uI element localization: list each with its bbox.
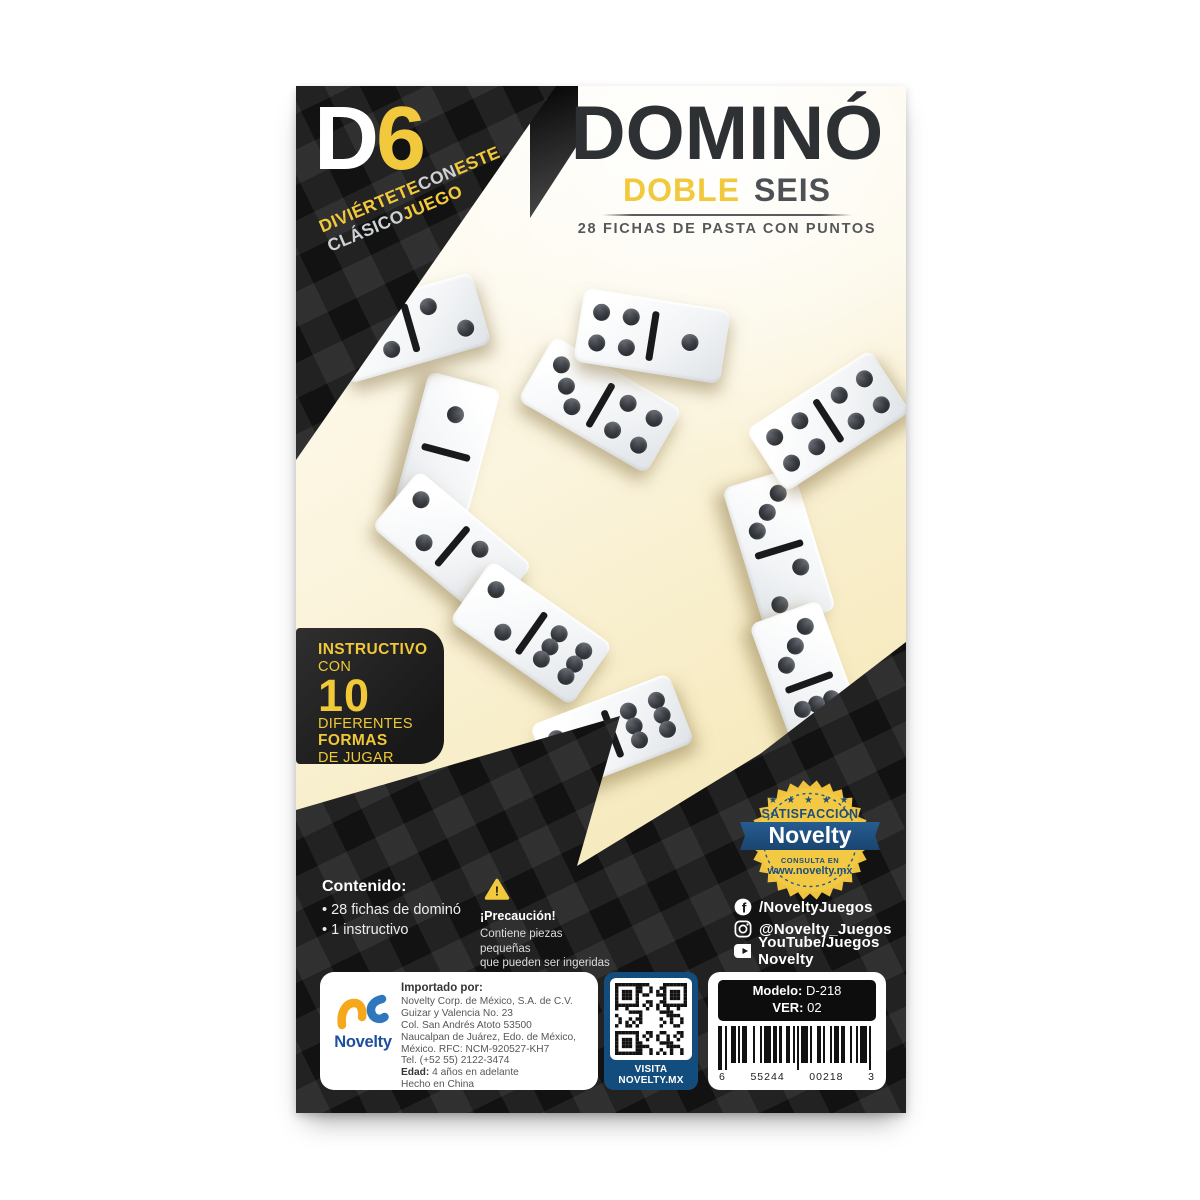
contenido-title: Contenido: <box>322 878 461 896</box>
qr-caption: VISITA NOVELTY.MX <box>610 1064 692 1086</box>
title-divider-rule <box>602 214 852 216</box>
pip <box>627 434 650 457</box>
barcode-bar <box>860 1026 867 1063</box>
pip <box>409 488 433 512</box>
pip <box>587 333 606 352</box>
pip <box>853 367 877 391</box>
qr-code-icon <box>615 983 687 1055</box>
pip <box>775 654 797 676</box>
model-header: Modelo: D-218 VER: 02 <box>718 980 876 1021</box>
product-packshot: D6 DIVIÉRTETECONESTE CLÁSICOJUEGO DOMINÓ… <box>0 0 1200 1200</box>
importer-line: Tel. (+52 55) 2122-3474 <box>401 1055 592 1067</box>
importer-title: Importado por: <box>401 982 592 995</box>
importer-line: Guizar y Valencia No. 23 <box>401 1008 592 1020</box>
instructivo-line: DIFERENTES <box>318 716 444 732</box>
barcode-digit-group: 00218 <box>809 1071 843 1083</box>
qr-code <box>610 978 692 1060</box>
barcode-digit-group: 55244 <box>750 1071 784 1083</box>
seal-brand: Novelty <box>740 822 880 849</box>
instructivo-line: INSTRUCTIVO <box>318 641 444 659</box>
tile-half <box>650 300 731 384</box>
social-handle: YouTube/Juegos Novelty <box>758 934 906 968</box>
pip <box>560 395 583 418</box>
satisfaction-seal: ★ ★ ★ ★ ★ SATISFACCIÓN Novelty CONSULTA … <box>740 770 880 910</box>
importer-origin: Hecho en China <box>401 1079 592 1091</box>
youtube-icon <box>734 943 751 959</box>
tile-half <box>573 288 654 372</box>
pip <box>446 404 467 425</box>
contenido-item: • 28 fichas de dominó <box>322 900 461 920</box>
barcode-digit-group: 6 <box>719 1071 726 1083</box>
novelty-logo: Novelty <box>330 980 396 1084</box>
age-label: Edad: <box>401 1067 429 1078</box>
barcode-digits: 6 55244 00218 3 <box>718 1070 876 1083</box>
product-subtitle: DOBLESEIS <box>547 174 906 208</box>
model-value: D-218 <box>802 983 841 998</box>
importer-line: México. RFC: NCM-920527-KH7 <box>401 1044 592 1056</box>
barcode-space <box>871 1026 875 1070</box>
svg-text:f: f <box>742 900 747 916</box>
pip <box>870 393 894 417</box>
seal-satisfaccion: SATISFACCIÓN <box>740 807 880 821</box>
novelty-wordmark: Novelty <box>330 1033 396 1052</box>
instagram-icon <box>734 920 752 938</box>
pip <box>412 531 436 555</box>
age-value: 4 años en adelante <box>429 1067 519 1078</box>
pip <box>550 353 573 376</box>
pip <box>601 419 624 442</box>
pip <box>418 296 439 317</box>
warning-icon: ! <box>484 878 510 901</box>
importer-age-line: Edad: 4 años en adelante <box>401 1067 592 1079</box>
product-description: 28 FICHAS DE PASTA CON PUNTOS <box>547 221 906 237</box>
social-links: f /NoveltyJuegos @Novelty_Juegos YouTube… <box>734 896 906 962</box>
ver-value: 02 <box>803 1000 821 1015</box>
instructivo-line: FORMAS <box>318 732 444 750</box>
barcode-digit-group: 3 <box>868 1071 875 1083</box>
pip <box>455 318 476 339</box>
pip <box>681 332 700 351</box>
precaucion-title: ¡Precaución! <box>480 909 612 925</box>
social-facebook: f /NoveltyJuegos <box>734 896 906 918</box>
seal-stars: ★ ★ ★ ★ ★ <box>740 795 880 806</box>
contenido-section: Contenido: • 28 fichas de dominó • 1 ins… <box>322 878 461 941</box>
barcode-bar <box>801 1026 808 1063</box>
qr-box: VISITA NOVELTY.MX <box>604 972 698 1090</box>
contenido-item: • 1 instructivo <box>322 920 461 940</box>
instructivo-badge: INSTRUCTIVO CON 10 DIFERENTES FORMAS DE … <box>296 628 444 764</box>
product-title: DOMINÓ <box>547 96 906 172</box>
pip <box>788 409 812 433</box>
pip <box>616 338 635 357</box>
pip <box>747 520 768 541</box>
social-youtube: YouTube/Juegos Novelty <box>734 940 906 962</box>
version-line: VER: 02 <box>718 1000 876 1017</box>
pip <box>484 578 508 602</box>
seal-consulta: CONSULTA EN <box>740 856 880 865</box>
subtitle-seis: SEIS <box>754 172 831 208</box>
seal-url: www.novelty.mx <box>740 865 880 877</box>
importer-line: Col. San Andrés Atoto 53500 <box>401 1020 592 1032</box>
pip <box>790 557 811 578</box>
instructivo-count: 10 <box>318 675 444 716</box>
barcode-space <box>747 1026 754 1063</box>
pip <box>763 425 787 449</box>
instructivo-line: DE JUGAR <box>318 750 444 766</box>
pip <box>780 451 804 475</box>
precaucion-line: que pueden ser ingeridas <box>480 956 612 970</box>
barcode <box>718 1026 876 1070</box>
facebook-icon: f <box>734 898 752 916</box>
subtitle-doble: DOBLE <box>623 172 740 208</box>
social-handle: /NoveltyJuegos <box>759 899 873 916</box>
d6-logo: D6 <box>314 94 423 184</box>
novelty-logo-icon <box>335 994 391 1030</box>
pip <box>805 435 829 459</box>
pip <box>381 339 402 360</box>
seal-ribbon: Novelty <box>740 822 880 850</box>
pip <box>828 383 852 407</box>
title-block: DOMINÓ DOBLESEIS 28 FICHAS DE PASTA CON … <box>547 96 906 237</box>
pip <box>617 392 640 415</box>
pip <box>621 307 640 326</box>
barcode-bar <box>764 1026 771 1063</box>
ver-label: VER: <box>772 1000 803 1015</box>
pip <box>757 501 778 522</box>
pip <box>468 538 492 562</box>
model-line: Modelo: D-218 <box>718 983 876 1000</box>
domino-tile-4-4 <box>746 350 906 493</box>
importer-text: Importado por: Novelty Corp. de México, … <box>396 980 592 1084</box>
importer-box: Novelty Importado por: Novelty Corp. de … <box>320 972 598 1090</box>
precaucion-line: Contiene piezas pequeñas <box>480 927 612 956</box>
d6-logo-d: D <box>314 89 376 189</box>
pip <box>592 303 611 322</box>
svg-text:!: ! <box>495 885 499 899</box>
model-barcode-box: Modelo: D-218 VER: 02 6 55244 00218 3 <box>708 972 886 1090</box>
pip <box>491 620 515 644</box>
pip <box>643 407 666 430</box>
importer-line: Naucalpan de Juárez, Edo. de México, <box>401 1032 592 1044</box>
importer-line: Novelty Corp. de México, S.A. de C.V. <box>401 996 592 1008</box>
pip <box>845 409 869 433</box>
package-box: D6 DIVIÉRTETECONESTE CLÁSICOJUEGO DOMINÓ… <box>296 86 906 1113</box>
pip <box>794 615 816 637</box>
pip <box>785 635 807 657</box>
pip <box>555 374 578 397</box>
d6-logo-6: 6 <box>376 89 423 189</box>
model-label: Modelo: <box>753 983 803 998</box>
